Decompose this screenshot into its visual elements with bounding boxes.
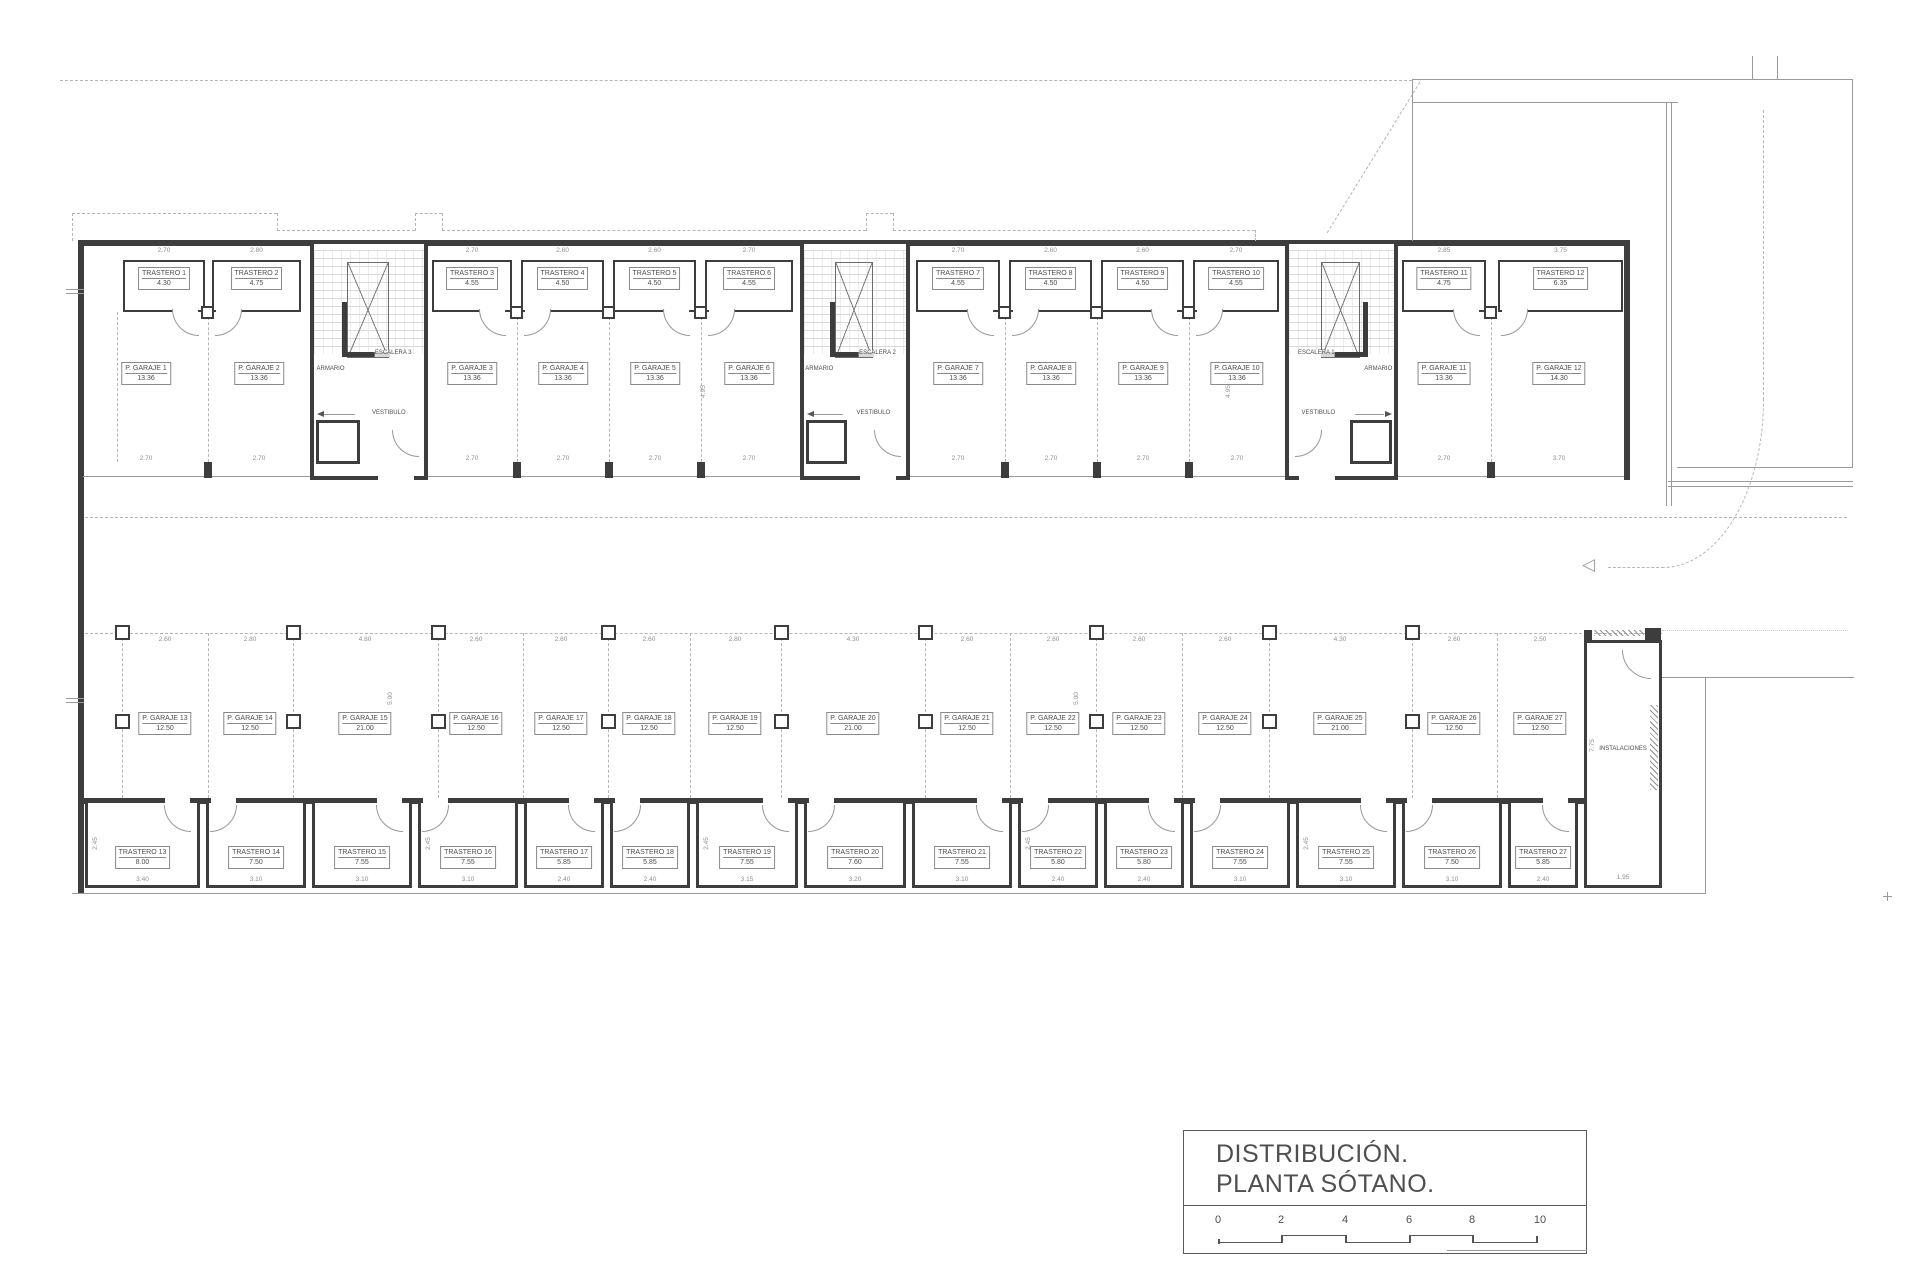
room-area: 4.50 xyxy=(633,278,677,288)
door-arc xyxy=(1295,430,1322,457)
width-dimension: 2.60 xyxy=(648,247,661,254)
lift-box xyxy=(806,420,847,464)
room-area: 12.50 xyxy=(1517,723,1562,733)
room-name: TRASTERO 26 xyxy=(1428,848,1476,857)
structural-pillar xyxy=(286,714,301,729)
garaje-label: P. GARAJE 1612.50 xyxy=(449,712,502,735)
boundary-line xyxy=(66,702,84,703)
parking-separator xyxy=(517,312,518,462)
width-dimension: 4.30 xyxy=(847,636,860,643)
room-area: 13.36 xyxy=(728,373,770,383)
door-arc xyxy=(1453,309,1480,336)
width-dimension: 3.15 xyxy=(741,876,754,883)
width-dimension: 3.10 xyxy=(1234,876,1247,883)
wall-stub xyxy=(1645,628,1661,642)
room-name: P. GARAJE 5 xyxy=(634,364,676,373)
room-area: 12.50 xyxy=(538,723,583,733)
garaje-label: P. GARAJE 113.36 xyxy=(121,362,171,385)
room-name: P. GARAJE 13 xyxy=(142,714,187,723)
stair-void-x xyxy=(1321,262,1361,358)
parking-separator xyxy=(523,633,524,798)
structural-pillar xyxy=(431,714,446,729)
garaje-label: P. GARAJE 1412.50 xyxy=(223,712,276,735)
width-dimension: 2.40 xyxy=(1537,876,1550,883)
width-dimension: 2.70 xyxy=(557,455,570,462)
column-square xyxy=(998,306,1011,319)
dashed-line xyxy=(1255,230,1256,241)
trastero-label: TRASTERO 267.50 xyxy=(1424,846,1480,869)
wall-stub xyxy=(1093,462,1101,478)
room-name: P. GARAJE 6 xyxy=(728,364,770,373)
boundary-line xyxy=(1705,677,1706,894)
room-name: TRASTERO 14 xyxy=(232,848,280,857)
room-name: P. GARAJE 24 xyxy=(1202,714,1247,723)
stair-void-x xyxy=(347,262,389,358)
width-dimension: 3.20 xyxy=(849,876,862,883)
width-dimension: 2.60 xyxy=(643,636,656,643)
door-arc xyxy=(215,309,242,336)
door-gap xyxy=(378,470,414,480)
room-area: 12.50 xyxy=(944,723,989,733)
scale-number: 8 xyxy=(1469,1214,1475,1226)
room-name: TRASTERO 7 xyxy=(936,269,980,278)
core-wall xyxy=(342,302,347,357)
room-area: 7.55 xyxy=(444,857,492,867)
width-dimension: 2.60 xyxy=(1448,636,1461,643)
garaje-label: P. GARAJE 713.36 xyxy=(933,362,983,385)
boundary-line xyxy=(1412,102,1678,103)
room-name: P. GARAJE 18 xyxy=(626,714,671,723)
door-arc xyxy=(967,309,994,336)
dashed-line xyxy=(60,80,1412,81)
door-arc xyxy=(762,805,789,832)
room-area: 21.00 xyxy=(342,723,387,733)
door-arc xyxy=(1501,309,1528,336)
room-area: 6.35 xyxy=(1537,278,1585,288)
trastero-label: TRASTERO 225.80 xyxy=(1030,846,1086,869)
trastero-label: TRASTERO 275.85 xyxy=(1515,846,1571,869)
garaje-label: P. GARAJE 2112.50 xyxy=(940,712,993,735)
garaje-label: P. GARAJE 213.36 xyxy=(234,362,284,385)
dashed-line xyxy=(1763,110,1764,400)
width-dimension: 4.30 xyxy=(1334,636,1347,643)
column-square xyxy=(1182,306,1195,319)
scale-bar-segment xyxy=(1409,1235,1472,1236)
parking-separator xyxy=(1491,312,1492,462)
room-name: P. GARAJE 22 xyxy=(1030,714,1075,723)
boundary-line xyxy=(66,293,84,294)
boundary-line xyxy=(1660,677,1854,678)
room-area: 21.00 xyxy=(830,723,875,733)
width-dimension: 2.80 xyxy=(250,247,263,254)
scale-bar-step xyxy=(1472,1235,1474,1243)
door-arc xyxy=(1151,309,1178,336)
room-name: TRASTERO 17 xyxy=(540,848,588,857)
width-dimension: 2.70 xyxy=(1045,455,1058,462)
garaje-label: P. GARAJE 313.36 xyxy=(447,362,497,385)
width-dimension: 2.40 xyxy=(558,876,571,883)
room-trastero-23 xyxy=(1104,800,1184,888)
room-area: 4.55 xyxy=(450,278,494,288)
room-area: 5.80 xyxy=(1120,857,1168,867)
vertical-dimension: 4.95 xyxy=(700,385,707,398)
room-area: 8.00 xyxy=(119,857,167,867)
dashed-line xyxy=(866,213,893,214)
title-block: DISTRIBUCIÓN. PLANTA SÓTANO. xyxy=(1183,1130,1587,1254)
structural-pillar xyxy=(115,625,130,640)
room-name: TRASTERO 24 xyxy=(1216,848,1264,857)
room-area: 12.50 xyxy=(1202,723,1247,733)
room-name: TRASTERO 16 xyxy=(444,848,492,857)
parking-separator xyxy=(1010,633,1011,798)
boundary-line xyxy=(66,289,84,290)
room-name: TRASTERO 22 xyxy=(1034,848,1082,857)
stair-core-2: ESCALERA 2ARMARIOVESTIBULO xyxy=(800,240,910,480)
width-dimension: 2.70 xyxy=(466,247,479,254)
room-area: 7.55 xyxy=(1216,857,1264,867)
door-arc xyxy=(708,309,735,336)
room-area: 14.30 xyxy=(1536,373,1581,383)
scale-number: 0 xyxy=(1215,1214,1221,1226)
vertical-dimension: 2.45 xyxy=(1303,837,1310,850)
room-name: TRASTERO 25 xyxy=(1322,848,1370,857)
room-area: 13.36 xyxy=(937,373,979,383)
room-trastero-21 xyxy=(912,800,1012,888)
door-arc xyxy=(1148,805,1175,832)
structural-pillar xyxy=(601,714,616,729)
garaje-label: P. GARAJE 513.36 xyxy=(630,362,680,385)
room-name: TRASTERO 9 xyxy=(1121,269,1165,278)
boundary-line xyxy=(1447,1250,1587,1251)
room-trastero-14 xyxy=(206,800,306,888)
insulation-hatch xyxy=(1594,630,1644,636)
width-dimension: 2.70 xyxy=(649,455,662,462)
floor-plan-canvas: DISTRIBUCIÓN. PLANTA SÓTANO. ◁4.954.955.… xyxy=(0,0,1920,1280)
door-arc xyxy=(422,805,449,832)
door-arc xyxy=(524,309,551,336)
escalera-label: ESCALERA 1 xyxy=(1298,350,1335,357)
parking-separator xyxy=(1005,312,1006,462)
room-area: 7.55 xyxy=(723,857,771,867)
trastero-label: TRASTERO 235.80 xyxy=(1116,846,1172,869)
room-trastero-13 xyxy=(85,800,200,888)
scale-bar-step xyxy=(1218,1239,1220,1244)
structural-pillar xyxy=(286,625,301,640)
room-trastero-26 xyxy=(1402,800,1502,888)
lift-arrow-icon xyxy=(1385,411,1392,417)
column-square xyxy=(510,306,523,319)
door-arc xyxy=(1012,309,1039,336)
width-dimension: 2.60 xyxy=(470,636,483,643)
width-dimension: 2.40 xyxy=(1138,876,1151,883)
room-area: 7.50 xyxy=(232,857,280,867)
width-dimension: 2.85 xyxy=(1438,247,1451,254)
room-area: 7.50 xyxy=(1428,857,1476,867)
room-trastero-18 xyxy=(610,800,690,888)
room-name: P. GARAJE 19 xyxy=(712,714,757,723)
boundary-line xyxy=(1852,79,1853,468)
trastero-label: TRASTERO 217.55 xyxy=(934,846,990,869)
lift-arrow-icon xyxy=(807,411,814,417)
room-name: P. GARAJE 2 xyxy=(238,364,280,373)
column-square xyxy=(1090,306,1103,319)
boundary-line xyxy=(1412,79,1853,80)
garaje-label: P. GARAJE 1214.30 xyxy=(1532,362,1585,385)
width-dimension: 2.50 xyxy=(1534,636,1547,643)
structural-pillar xyxy=(1089,625,1104,640)
wall-stub xyxy=(1185,462,1193,478)
boundary-line xyxy=(1752,56,1753,79)
scale-bar-segment xyxy=(1281,1235,1345,1236)
room-trastero-16 xyxy=(418,800,518,888)
wall-stub xyxy=(605,462,613,478)
lift-arrow-icon xyxy=(317,411,324,417)
garaje-label: P. GARAJE 1712.50 xyxy=(534,712,587,735)
title-block-divider xyxy=(1184,1205,1586,1206)
core-wall xyxy=(830,302,835,357)
width-dimension: 2.60 xyxy=(556,247,569,254)
stair-core-3: ESCALERA 1ARMARIOVESTIBULO xyxy=(1285,240,1398,480)
door-arc xyxy=(874,430,901,457)
parking-separator xyxy=(1182,633,1183,798)
wall xyxy=(1624,240,1630,480)
dashed-line xyxy=(277,230,415,231)
room-area: 4.55 xyxy=(1212,278,1260,288)
trastero-label: TRASTERO 104.55 xyxy=(1208,267,1264,290)
width-dimension: 3.10 xyxy=(1340,876,1353,883)
door-arc xyxy=(1022,805,1049,832)
trastero-label: TRASTERO 247.55 xyxy=(1212,846,1268,869)
room-area: 4.50 xyxy=(541,278,585,288)
room-name: TRASTERO 3 xyxy=(450,269,494,278)
parking-separator xyxy=(208,633,209,798)
structural-pillar xyxy=(115,714,130,729)
trastero-label: TRASTERO 24.75 xyxy=(231,267,283,290)
dashed-line xyxy=(72,213,73,241)
room-name: P. GARAJE 23 xyxy=(1116,714,1161,723)
scale-bar-segment xyxy=(1472,1242,1536,1243)
scale-number: 10 xyxy=(1534,1214,1546,1226)
scale-bar-step xyxy=(1536,1236,1538,1243)
garaje-label: P. GARAJE 2312.50 xyxy=(1112,712,1165,735)
width-dimension: 2.40 xyxy=(1052,876,1065,883)
width-dimension: 2.70 xyxy=(1137,455,1150,462)
width-dimension: 2.70 xyxy=(253,455,266,462)
trastero-label: TRASTERO 34.55 xyxy=(446,267,498,290)
dashed-line xyxy=(442,213,443,231)
width-dimension: 2.60 xyxy=(555,636,568,643)
door-arc xyxy=(614,805,641,832)
width-dimension: 1.95 xyxy=(1617,874,1630,881)
width-dimension: 4.80 xyxy=(359,636,372,643)
instalaciones-label: INSTALACIONES xyxy=(1599,746,1647,753)
room-area: 7.60 xyxy=(831,857,879,867)
room-name: P. GARAJE 7 xyxy=(937,364,979,373)
structural-pillar xyxy=(1089,714,1104,729)
width-dimension: 2.60 xyxy=(961,636,974,643)
width-dimension: 2.70 xyxy=(158,247,171,254)
room-name: P. GARAJE 4 xyxy=(542,364,584,373)
room-area: 21.00 xyxy=(1317,723,1362,733)
parking-separator xyxy=(690,633,691,798)
structural-pillar xyxy=(774,625,789,640)
garaje-label: P. GARAJE 1113.36 xyxy=(1418,362,1471,385)
garaje-label: P. GARAJE 1013.36 xyxy=(1210,362,1263,385)
room-name: TRASTERO 23 xyxy=(1120,848,1168,857)
width-dimension: 3.10 xyxy=(462,876,475,883)
garaje-label: P. GARAJE 613.36 xyxy=(724,362,774,385)
scale-bar-segment xyxy=(1345,1242,1409,1243)
room-name: P. GARAJE 27 xyxy=(1517,714,1562,723)
width-dimension: 3.70 xyxy=(1553,455,1566,462)
room-name: TRASTERO 27 xyxy=(1519,848,1567,857)
room-area: 12.50 xyxy=(453,723,498,733)
garaje-label: P. GARAJE 413.36 xyxy=(538,362,588,385)
width-dimension: 2.60 xyxy=(1136,247,1149,254)
room-area: 4.55 xyxy=(727,278,771,288)
parking-separator xyxy=(208,312,209,462)
structural-pillar xyxy=(601,625,616,640)
lift-box xyxy=(316,420,360,464)
room-name: TRASTERO 19 xyxy=(723,848,771,857)
scale-bar-step xyxy=(1409,1235,1411,1243)
width-dimension: 2.70 xyxy=(1231,455,1244,462)
dashed-line xyxy=(85,633,1662,634)
wall-stub xyxy=(697,462,705,478)
door-arc xyxy=(172,309,199,336)
garaje-label: P. GARAJE 1912.50 xyxy=(708,712,761,735)
dashed-line xyxy=(866,213,867,231)
dashed-line xyxy=(117,312,118,462)
width-dimension: 3.75 xyxy=(1554,247,1567,254)
dotted-line xyxy=(1662,630,1848,631)
room-name: TRASTERO 18 xyxy=(626,848,674,857)
room-area: 12.50 xyxy=(1116,723,1161,733)
dashed-line xyxy=(442,230,866,231)
room-name: P. GARAJE 1 xyxy=(125,364,167,373)
room-area: 5.80 xyxy=(1034,857,1082,867)
core-wall xyxy=(1363,302,1368,357)
scale-bar-step xyxy=(1345,1235,1347,1243)
plan-title-line1: DISTRIBUCIÓN. xyxy=(1216,1139,1409,1169)
room-name: P. GARAJE 15 xyxy=(342,714,387,723)
room-name: TRASTERO 5 xyxy=(633,269,677,278)
width-dimension: 2.60 xyxy=(1219,636,1232,643)
room-area: 7.55 xyxy=(1322,857,1370,867)
room-name: TRASTERO 8 xyxy=(1029,269,1073,278)
entry-arrow-icon: ◁ xyxy=(1582,556,1595,573)
armario-label: ARMARIO xyxy=(1364,366,1392,373)
dashed-line xyxy=(85,517,1847,518)
column-square xyxy=(694,306,707,319)
structural-pillar xyxy=(1262,714,1277,729)
width-dimension: 2.40 xyxy=(644,876,657,883)
wall-stub xyxy=(1487,462,1495,478)
width-dimension: 2.70 xyxy=(1230,247,1243,254)
room-name: TRASTERO 21 xyxy=(938,848,986,857)
door-arc xyxy=(1406,805,1433,832)
column-square xyxy=(201,306,214,319)
room-name: P. GARAJE 3 xyxy=(451,364,493,373)
wall-stub xyxy=(513,462,521,478)
width-dimension: 3.40 xyxy=(136,876,149,883)
door-arc xyxy=(1194,805,1221,832)
structural-pillar xyxy=(431,625,446,640)
room-area: 13.36 xyxy=(634,373,676,383)
trastero-label: TRASTERO 64.55 xyxy=(723,267,775,290)
boundary-line xyxy=(1412,79,1413,241)
vertical-dimension: 7.75 xyxy=(1589,739,1596,752)
door-arc xyxy=(1542,805,1569,832)
vertical-dimension: 5.00 xyxy=(387,692,394,705)
door-arc xyxy=(164,805,191,832)
room-trastero-24 xyxy=(1190,800,1290,888)
room-trastero-15 xyxy=(312,800,412,888)
width-dimension: 3.10 xyxy=(1446,876,1459,883)
escalera-label: ESCALERA 3 xyxy=(375,350,412,357)
room-name: P. GARAJE 26 xyxy=(1431,714,1476,723)
width-dimension: 2.70 xyxy=(952,455,965,462)
parking-separator xyxy=(1097,312,1098,462)
room-area: 4.55 xyxy=(936,278,980,288)
room-name: TRASTERO 2 xyxy=(235,269,279,278)
room-area: 4.75 xyxy=(1420,278,1467,288)
room-name: TRASTERO 1 xyxy=(142,269,186,278)
garaje-label: P. GARAJE 2712.50 xyxy=(1513,712,1566,735)
width-dimension: 2.60 xyxy=(1133,636,1146,643)
garaje-label: P. GARAJE 2212.50 xyxy=(1026,712,1079,735)
stair-void-x xyxy=(835,262,874,358)
width-dimension: 2.60 xyxy=(159,636,172,643)
width-dimension: 2.60 xyxy=(1044,247,1057,254)
parking-separator xyxy=(609,312,610,462)
room-name: P. GARAJE 16 xyxy=(453,714,498,723)
dashed-line xyxy=(893,213,894,231)
room-name: TRASTERO 12 xyxy=(1537,269,1585,278)
scale-number: 6 xyxy=(1406,1214,1412,1226)
trastero-label: TRASTERO 54.50 xyxy=(629,267,681,290)
stair-core-1: ESCALERA 3ARMARIOVESTIBULO xyxy=(310,240,428,480)
door-arc xyxy=(568,805,595,832)
room-name: P. GARAJE 20 xyxy=(830,714,875,723)
boundary-line xyxy=(1777,56,1778,79)
room-trastero-25 xyxy=(1296,800,1396,888)
width-dimension: 2.60 xyxy=(1047,636,1060,643)
structural-pillar xyxy=(1405,625,1420,640)
scale-number: 2 xyxy=(1278,1214,1284,1226)
room-trastero-20 xyxy=(804,800,906,888)
room-area: 5.85 xyxy=(540,857,588,867)
trastero-label: TRASTERO 94.50 xyxy=(1117,267,1169,290)
garaje-label: P. GARAJE 813.36 xyxy=(1026,362,1076,385)
armario-label: ARMARIO xyxy=(805,366,833,373)
room-area: 13.36 xyxy=(1422,373,1467,383)
room-name: P. GARAJE 9 xyxy=(1122,364,1164,373)
structural-pillar xyxy=(918,625,933,640)
vestibulo-label: VESTIBULO xyxy=(1302,410,1336,417)
room-area: 4.30 xyxy=(142,278,186,288)
door-arc xyxy=(1360,805,1387,832)
trastero-label: TRASTERO 14.30 xyxy=(138,267,190,290)
room-trastero-27 xyxy=(1508,800,1578,888)
trastero-label: TRASTERO 44.50 xyxy=(537,267,589,290)
room-area: 13.36 xyxy=(238,373,280,383)
trastero-label: TRASTERO 157.55 xyxy=(334,846,390,869)
ramp-slope-line xyxy=(1327,82,1421,233)
door-arc xyxy=(976,805,1003,832)
room-area: 13.36 xyxy=(1122,373,1164,383)
dashed-line xyxy=(893,230,1255,231)
